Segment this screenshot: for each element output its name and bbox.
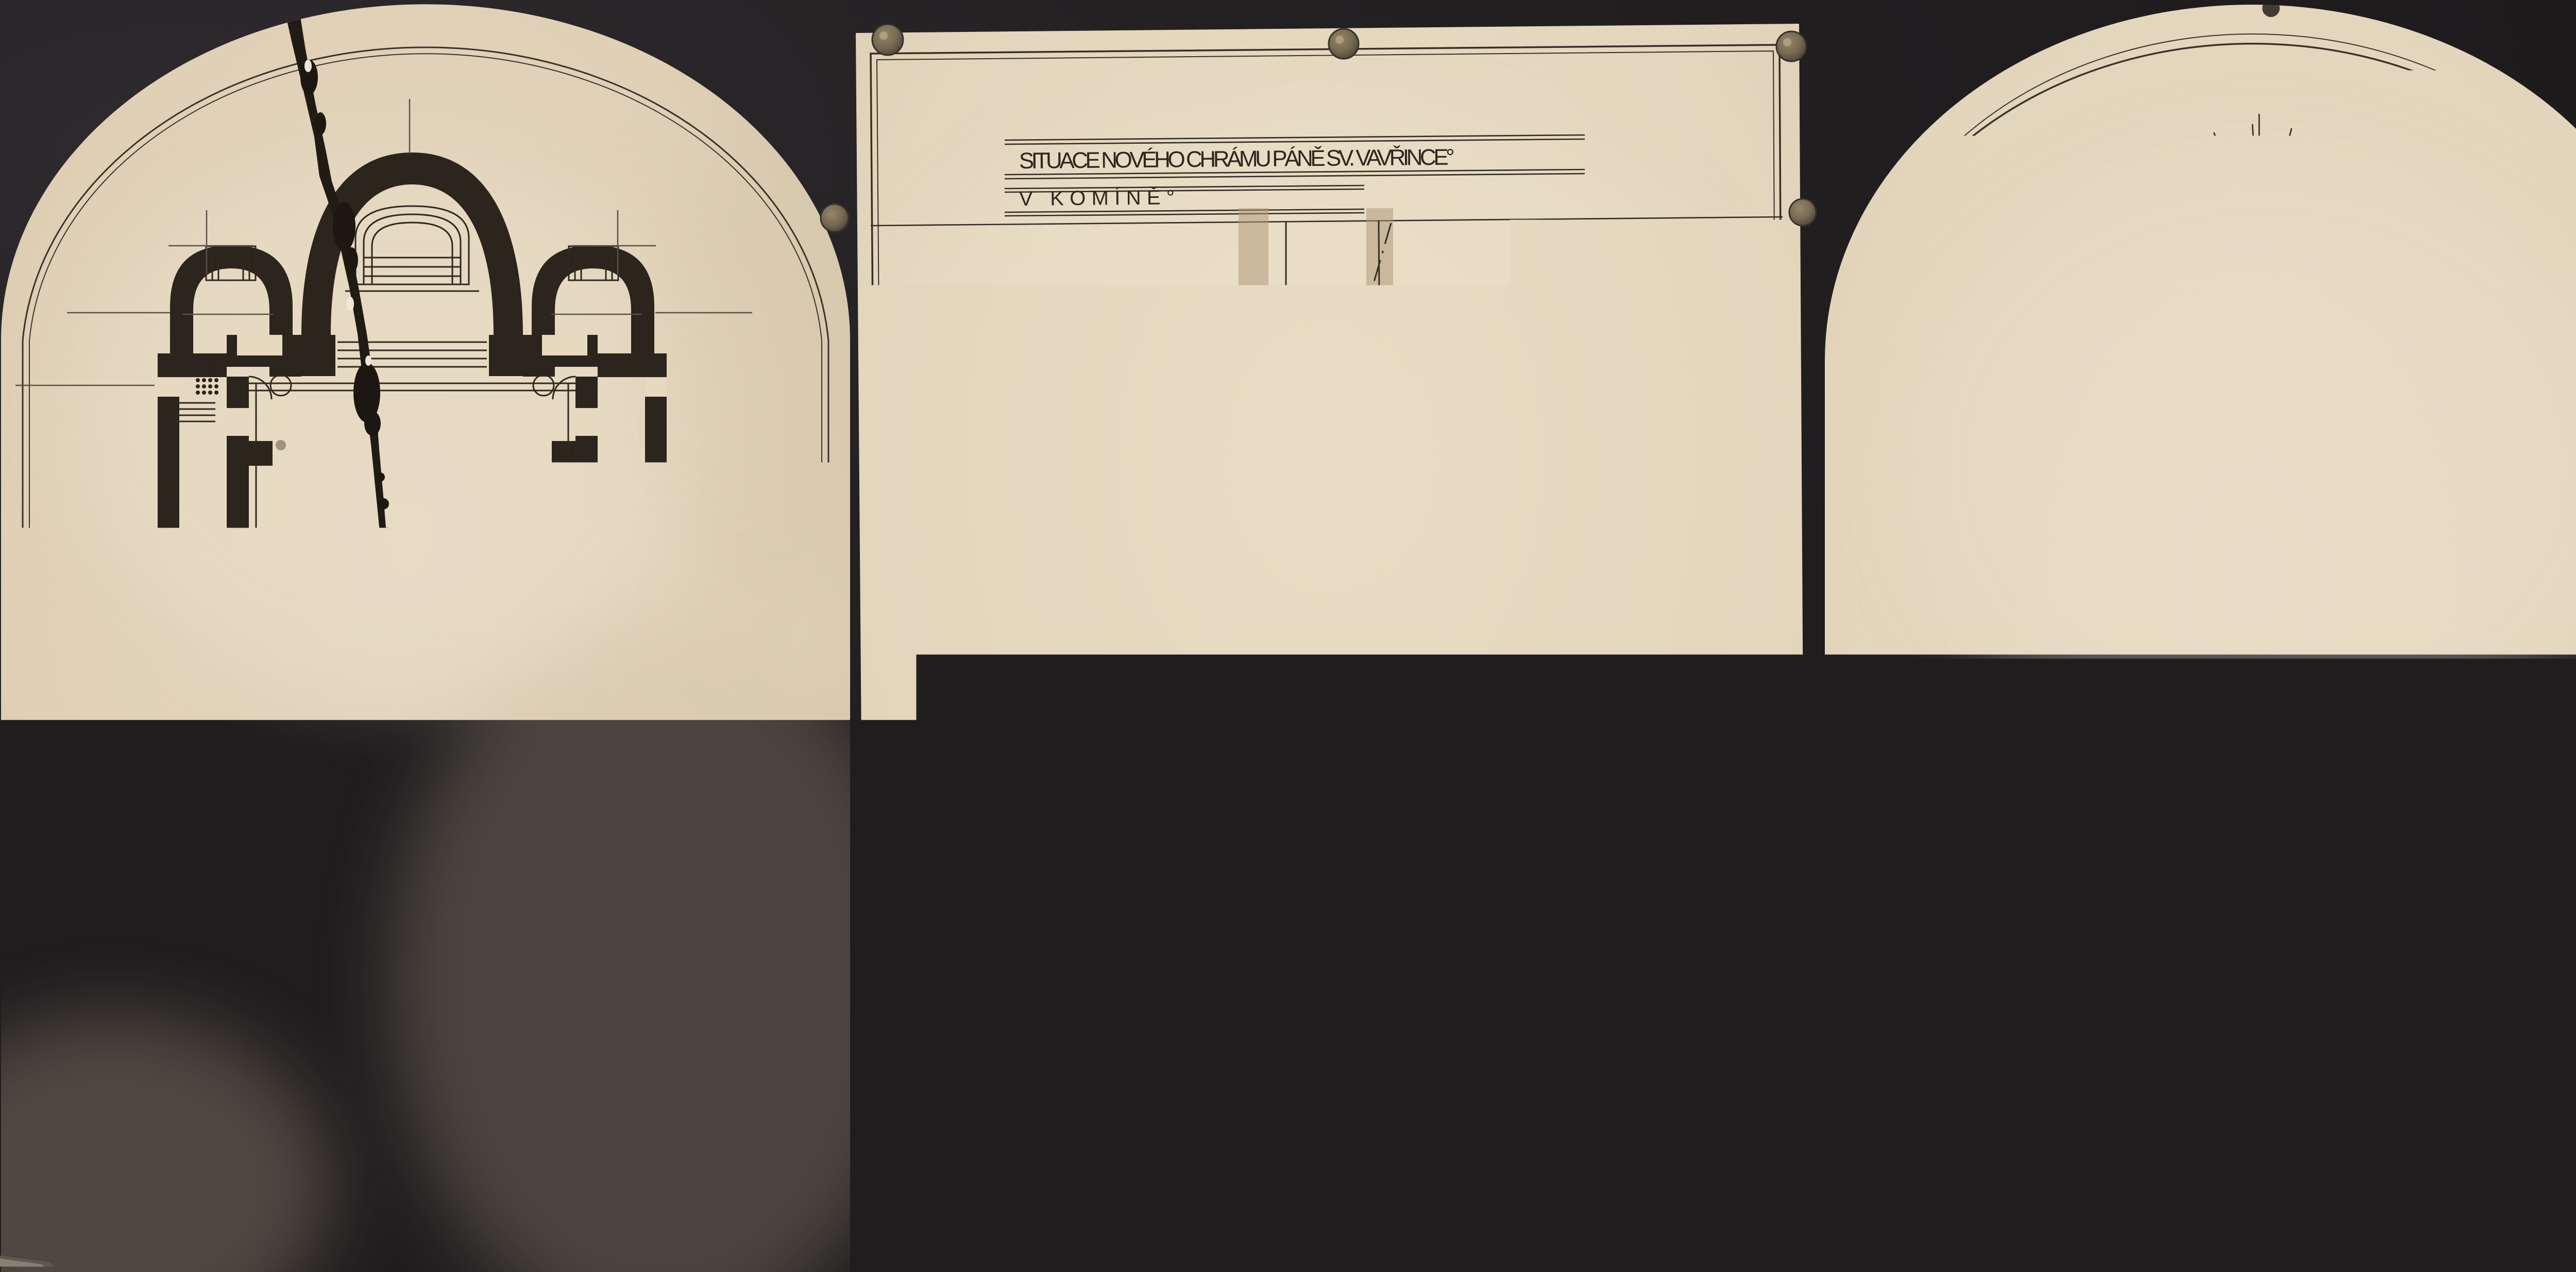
svg-text:V KOMÍNĚ°: V KOMÍNĚ° bbox=[1019, 185, 1175, 210]
svg-text:PŮDORYS CHORU°: PŮDORYS CHORU° bbox=[2160, 1122, 2365, 1146]
svg-text:Architekt: Architekt bbox=[2548, 1147, 2576, 1171]
svg-text:M° 1:200: M° 1:200 bbox=[2191, 1157, 2300, 1184]
svg-text:1908.: 1908. bbox=[717, 1206, 768, 1231]
svg-text:PŮDORYS PŘÍZEMÍ°: PŮDORYS PŘÍZEMÍ° bbox=[305, 1132, 532, 1159]
svg-text:1908.: 1908. bbox=[1716, 1196, 1762, 1219]
svg-text:M° 1:200: M° 1:200 bbox=[362, 1163, 469, 1190]
svg-text:NÁVRH CHRÁMU PÁNĚ SV. VAVŘINCE: NÁVRH CHRÁMU PÁNĚ SV. VAVŘINCE V KOMÍNĚ° bbox=[23, 1224, 615, 1251]
svg-text:SITUACE NOVÉHO CHRÁMU PÁNĚ SV.: SITUACE NOVÉHO CHRÁMU PÁNĚ SV. VAVŘINCE° bbox=[1019, 145, 1455, 174]
svg-text:NÁVRH CHRÁMU PÁNĚ SV. VAVŘINCE: NÁVRH CHRÁMU PÁNĚ SV. VAVŘINCE V KOMÍNĚ° bbox=[1897, 1213, 2567, 1240]
